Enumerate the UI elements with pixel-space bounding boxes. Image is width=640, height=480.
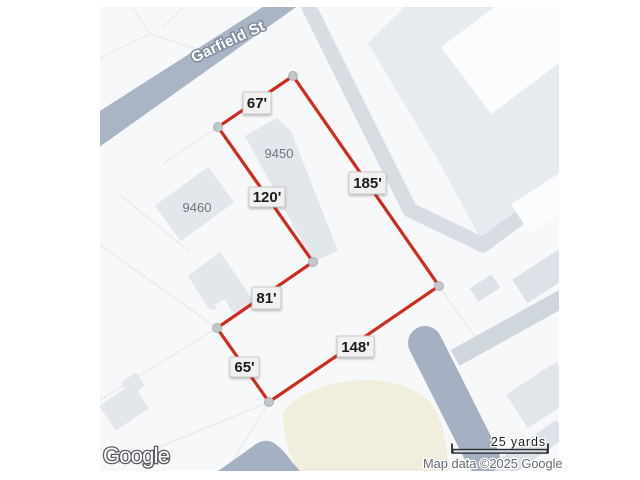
svg-text:81': 81' bbox=[256, 290, 276, 307]
svg-text:Google: Google bbox=[103, 443, 170, 468]
svg-text:25 yards: 25 yards bbox=[491, 435, 546, 449]
svg-text:65': 65' bbox=[234, 359, 254, 376]
svg-text:9460: 9460 bbox=[183, 200, 212, 215]
svg-text:148': 148' bbox=[341, 339, 370, 356]
svg-text:185': 185' bbox=[353, 175, 382, 192]
svg-text:67': 67' bbox=[247, 95, 267, 112]
svg-text:9450: 9450 bbox=[265, 146, 294, 161]
svg-text:120': 120' bbox=[253, 189, 282, 206]
svg-text:Map data ©2025 Google: Map data ©2025 Google bbox=[423, 456, 563, 471]
